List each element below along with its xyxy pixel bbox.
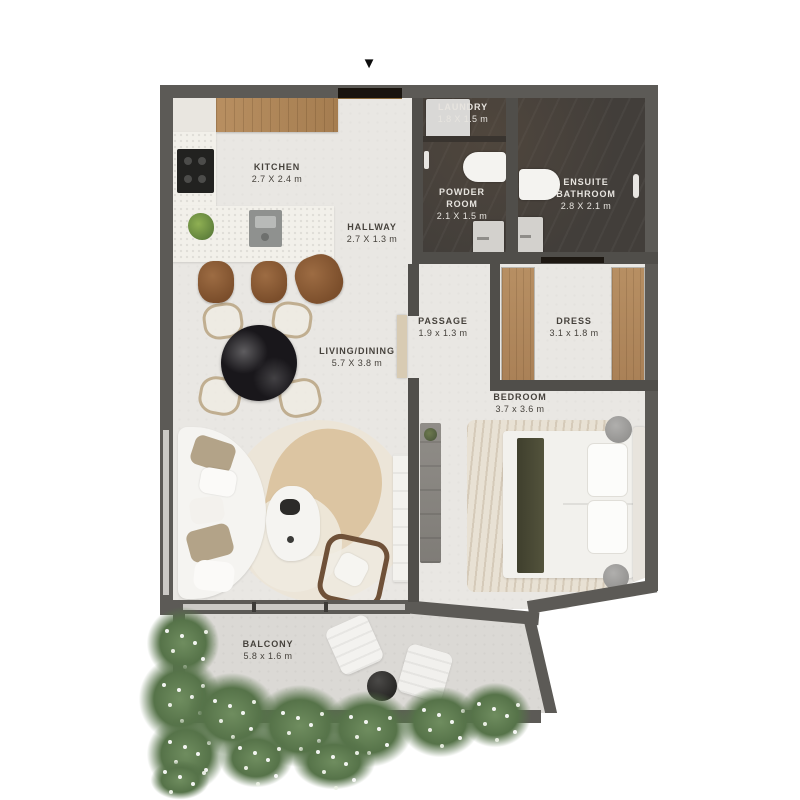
toilet-powder-room <box>463 152 506 182</box>
towel-rail <box>424 151 429 169</box>
wardrobe-right <box>612 268 644 380</box>
bar-stool <box>251 261 287 303</box>
wall-dress-left <box>490 264 500 390</box>
room-label-bedroom: BEDROOM 3.7 x 3.6 m <box>493 391 546 415</box>
room-label-kitchen: KITCHEN 2.7 X 2.4 m <box>252 161 302 185</box>
wall-passage-upper <box>408 264 419 316</box>
wardrobe-left <box>502 268 534 380</box>
nightstand <box>605 416 632 443</box>
dining-table <box>221 325 297 401</box>
window-mullion <box>324 602 328 612</box>
window-mullion <box>252 602 256 612</box>
bedroom-dresser <box>420 423 441 563</box>
pillow <box>587 500 628 554</box>
kitchen-sink <box>249 210 282 247</box>
coffee-table <box>266 486 320 561</box>
toilet-ensuite <box>519 169 560 200</box>
wall-top <box>160 85 658 98</box>
room-label-laundry: LAUNDRY 1.8 X 1.5 m <box>438 101 488 125</box>
wall-laundry-divider <box>423 136 506 142</box>
shower-fitting <box>633 174 639 198</box>
room-label-dress: DRESS 3.1 x 1.8 m <box>550 315 599 339</box>
room-label-hallway: HALLWAY 2.7 X 1.3 m <box>347 221 397 245</box>
entry-arrow-icon: ▼ <box>362 56 377 71</box>
wall-bath-bottom <box>412 252 658 264</box>
door-leaf-living <box>397 315 407 378</box>
door-sill-dress <box>541 257 604 263</box>
cooktop <box>177 149 214 193</box>
kitchen-counter-top <box>216 98 338 132</box>
wall-powder-ensuite <box>506 98 518 258</box>
wall-dress-bottom <box>490 380 658 391</box>
plant <box>218 728 294 788</box>
tv-console <box>393 454 409 582</box>
plant <box>150 760 210 800</box>
wall-bath-left <box>412 98 423 263</box>
room-label-balcony: BALCONY 5.8 x 1.6 m <box>243 638 294 662</box>
entry-door <box>338 88 402 99</box>
room-label-living-dining: LIVING/DINING 5.7 X 3.8 m <box>319 345 395 369</box>
pillow <box>587 443 628 497</box>
room-label-ensuite-bathroom: ENSUITE BATHROOM 2.8 X 2.1 m <box>556 176 616 212</box>
bar-stool <box>198 261 234 303</box>
floor-plan-canvas: ▼ <box>0 0 800 800</box>
room-label-powder-room: POWDER ROOM 2.1 X 1.5 m <box>437 186 487 222</box>
bed-throw-blanket <box>517 438 544 573</box>
wall-right <box>645 85 658 591</box>
window-living-west <box>163 430 169 595</box>
room-label-passage: PASSAGE 1.9 x 1.3 m <box>418 315 468 339</box>
kitchen-corner-cabinet <box>172 98 216 132</box>
window-living-south <box>183 604 405 610</box>
wall-passage-lower <box>408 378 419 602</box>
plant <box>458 682 532 748</box>
plant <box>292 734 376 790</box>
island-plant <box>188 213 214 240</box>
